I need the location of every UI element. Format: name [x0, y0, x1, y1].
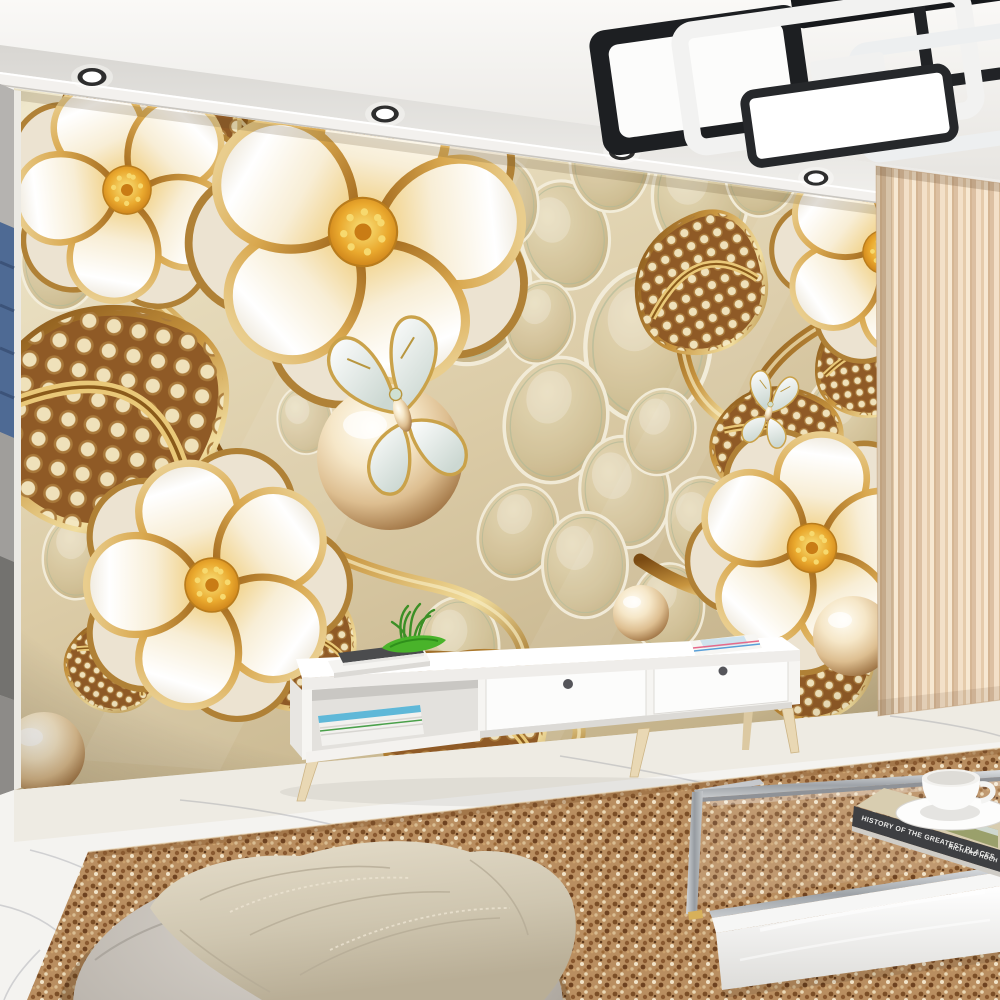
drawer-knob: [719, 667, 728, 676]
spotlight-icon: [365, 102, 405, 127]
left-wall: [0, 84, 14, 795]
drawer-knob: [563, 679, 573, 689]
sheer-curtain: [876, 166, 1000, 716]
spotlight-icon: [798, 167, 834, 189]
room-photo-canvas: HISTORY OF THE GREATEST PLACES RICHARD H…: [0, 0, 1000, 1000]
blue-window-shade: [0, 222, 14, 438]
spotlight-icon: [71, 64, 113, 90]
room-photo: HISTORY OF THE GREATEST PLACES RICHARD H…: [0, 0, 1000, 1000]
wall-edge-trim: [14, 90, 21, 790]
